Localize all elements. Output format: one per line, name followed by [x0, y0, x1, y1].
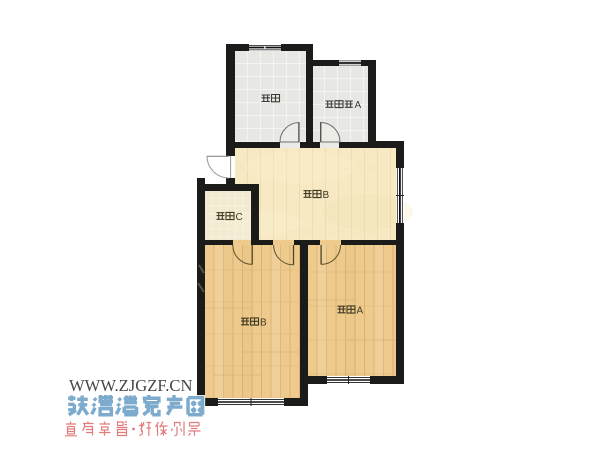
svg-text:B: B	[260, 318, 267, 329]
svg-text:B: B	[323, 190, 330, 201]
svg-text:A: A	[357, 306, 364, 317]
svg-text:WWW.ZJGZF.CN: WWW.ZJGZF.CN	[69, 376, 192, 395]
svg-text:C: C	[236, 212, 243, 223]
svg-text:A: A	[355, 100, 362, 111]
